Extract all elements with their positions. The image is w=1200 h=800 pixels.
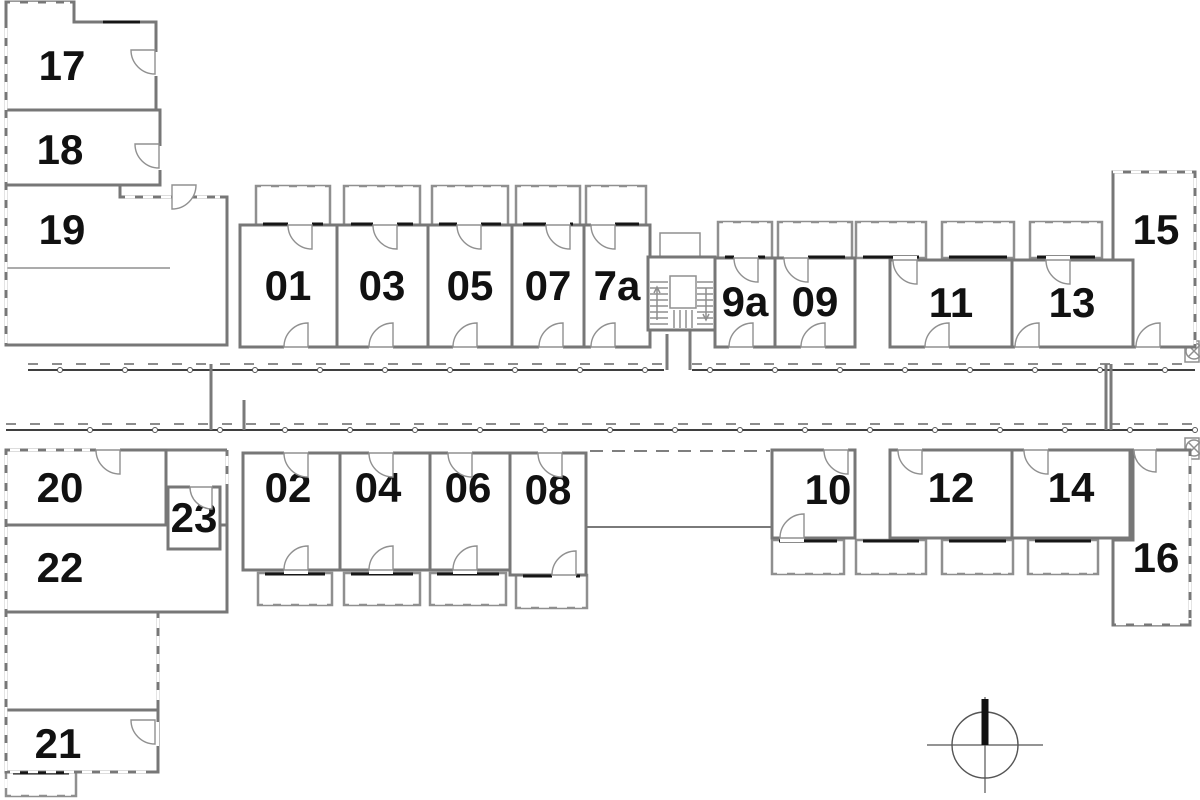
room-label-15: 15 <box>1133 206 1180 253</box>
balcony-07 <box>516 186 580 225</box>
window-slits <box>6 3 1195 795</box>
room-unlabeled <box>6 612 158 710</box>
room-01[interactable]: 01 <box>240 225 337 347</box>
doors <box>96 50 1160 746</box>
room-label-12: 12 <box>928 464 975 511</box>
balcony-gap-s <box>856 540 926 574</box>
balcony-04 <box>344 573 420 605</box>
room-label-20: 20 <box>37 464 84 511</box>
stairs-icon <box>648 233 715 330</box>
rooms: 171819010305077a9a0911131520222123020406… <box>6 2 1195 772</box>
room-label-01: 01 <box>265 262 312 309</box>
room-label-16: 16 <box>1133 534 1180 581</box>
balcony-13 <box>1030 222 1102 258</box>
balcony-01 <box>256 186 330 225</box>
balcony-05 <box>432 186 508 225</box>
floor-plan: 171819010305077a9a0911131520222123020406… <box>0 0 1200 800</box>
room-7a[interactable]: 7a <box>584 225 650 347</box>
room-label-11: 11 <box>929 279 973 326</box>
room-label-05: 05 <box>447 262 494 309</box>
room-label-18: 18 <box>37 126 84 173</box>
balcony-03 <box>344 186 420 225</box>
balcony-12 <box>942 540 1013 574</box>
room-label-09: 09 <box>792 278 839 325</box>
room-label-22: 22 <box>37 544 84 591</box>
room-label-9a: 9a <box>722 278 769 325</box>
room-label-14: 14 <box>1048 464 1095 511</box>
balcony-11 <box>942 222 1014 258</box>
room-label-21: 21 <box>35 720 82 767</box>
room-label-07: 07 <box>525 262 572 309</box>
north-arrow-icon <box>927 697 1043 793</box>
balcony-10 <box>772 540 844 574</box>
room-label-19: 19 <box>39 206 86 253</box>
balcony-08 <box>516 575 587 608</box>
balcony-02 <box>258 573 332 605</box>
room-label-7a: 7a <box>594 262 641 309</box>
room-label-13: 13 <box>1049 279 1096 326</box>
balcony-14 <box>1028 540 1098 574</box>
balcony-06 <box>430 573 506 605</box>
balcony-21 <box>6 772 76 796</box>
corridor-nodes <box>58 368 1198 433</box>
balcony-9a <box>718 222 772 258</box>
balcony-09 <box>778 222 852 258</box>
room-20[interactable]: 20 <box>6 450 166 525</box>
floor-plan-canvas: 171819010305077a9a0911131520222123020406… <box>0 0 1200 800</box>
balcony-7a <box>586 186 646 225</box>
room-label-17: 17 <box>39 42 86 89</box>
accent-walls <box>6 22 1095 773</box>
room-19[interactable]: 19 <box>6 185 227 345</box>
elevator-icon <box>660 233 700 257</box>
balcony-gap-n <box>856 222 926 258</box>
room-label-03: 03 <box>359 262 406 309</box>
